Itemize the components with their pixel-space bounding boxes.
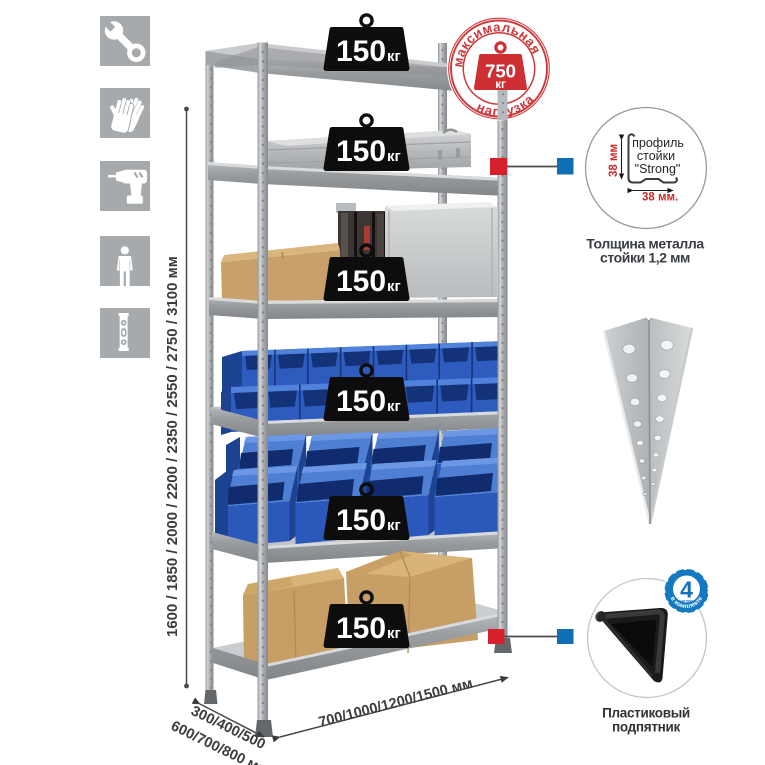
svg-text:стойки: стойки: [637, 149, 675, 163]
svg-text:150: 150: [336, 385, 386, 418]
svg-text:кг: кг: [387, 625, 401, 642]
svg-text:кг: кг: [387, 48, 401, 65]
svg-text:кг: кг: [387, 517, 401, 534]
svg-text:700/1000/1200/1500 мм: 700/1000/1200/1500 мм: [317, 676, 474, 731]
svg-text:подпятник: подпятник: [612, 720, 680, 735]
svg-text:кг: кг: [387, 398, 401, 415]
svg-text:150: 150: [336, 135, 386, 168]
svg-text:150: 150: [336, 612, 386, 645]
svg-text:кг: кг: [387, 278, 401, 295]
svg-text:стойки 1,2 мм: стойки 1,2 мм: [600, 250, 690, 266]
svg-text:1600 / 1850 / 2000 / 2200 / 23: 1600 / 1850 / 2000 / 2200 / 2350 / 2550 …: [164, 256, 181, 637]
svg-text:150: 150: [336, 265, 386, 298]
svg-text:штуки: штуки: [680, 598, 693, 603]
svg-text:38 мм: 38 мм: [608, 144, 620, 177]
svg-text:кг: кг: [387, 148, 401, 165]
svg-text:профиль: профиль: [632, 136, 684, 150]
svg-text:кг: кг: [495, 79, 506, 91]
svg-text:38 мм.: 38 мм.: [642, 192, 678, 204]
svg-text:150: 150: [336, 504, 386, 537]
svg-text:"Strong": "Strong": [635, 162, 681, 176]
svg-text:Пластиковый: Пластиковый: [602, 706, 690, 721]
svg-text:150: 150: [336, 35, 386, 68]
